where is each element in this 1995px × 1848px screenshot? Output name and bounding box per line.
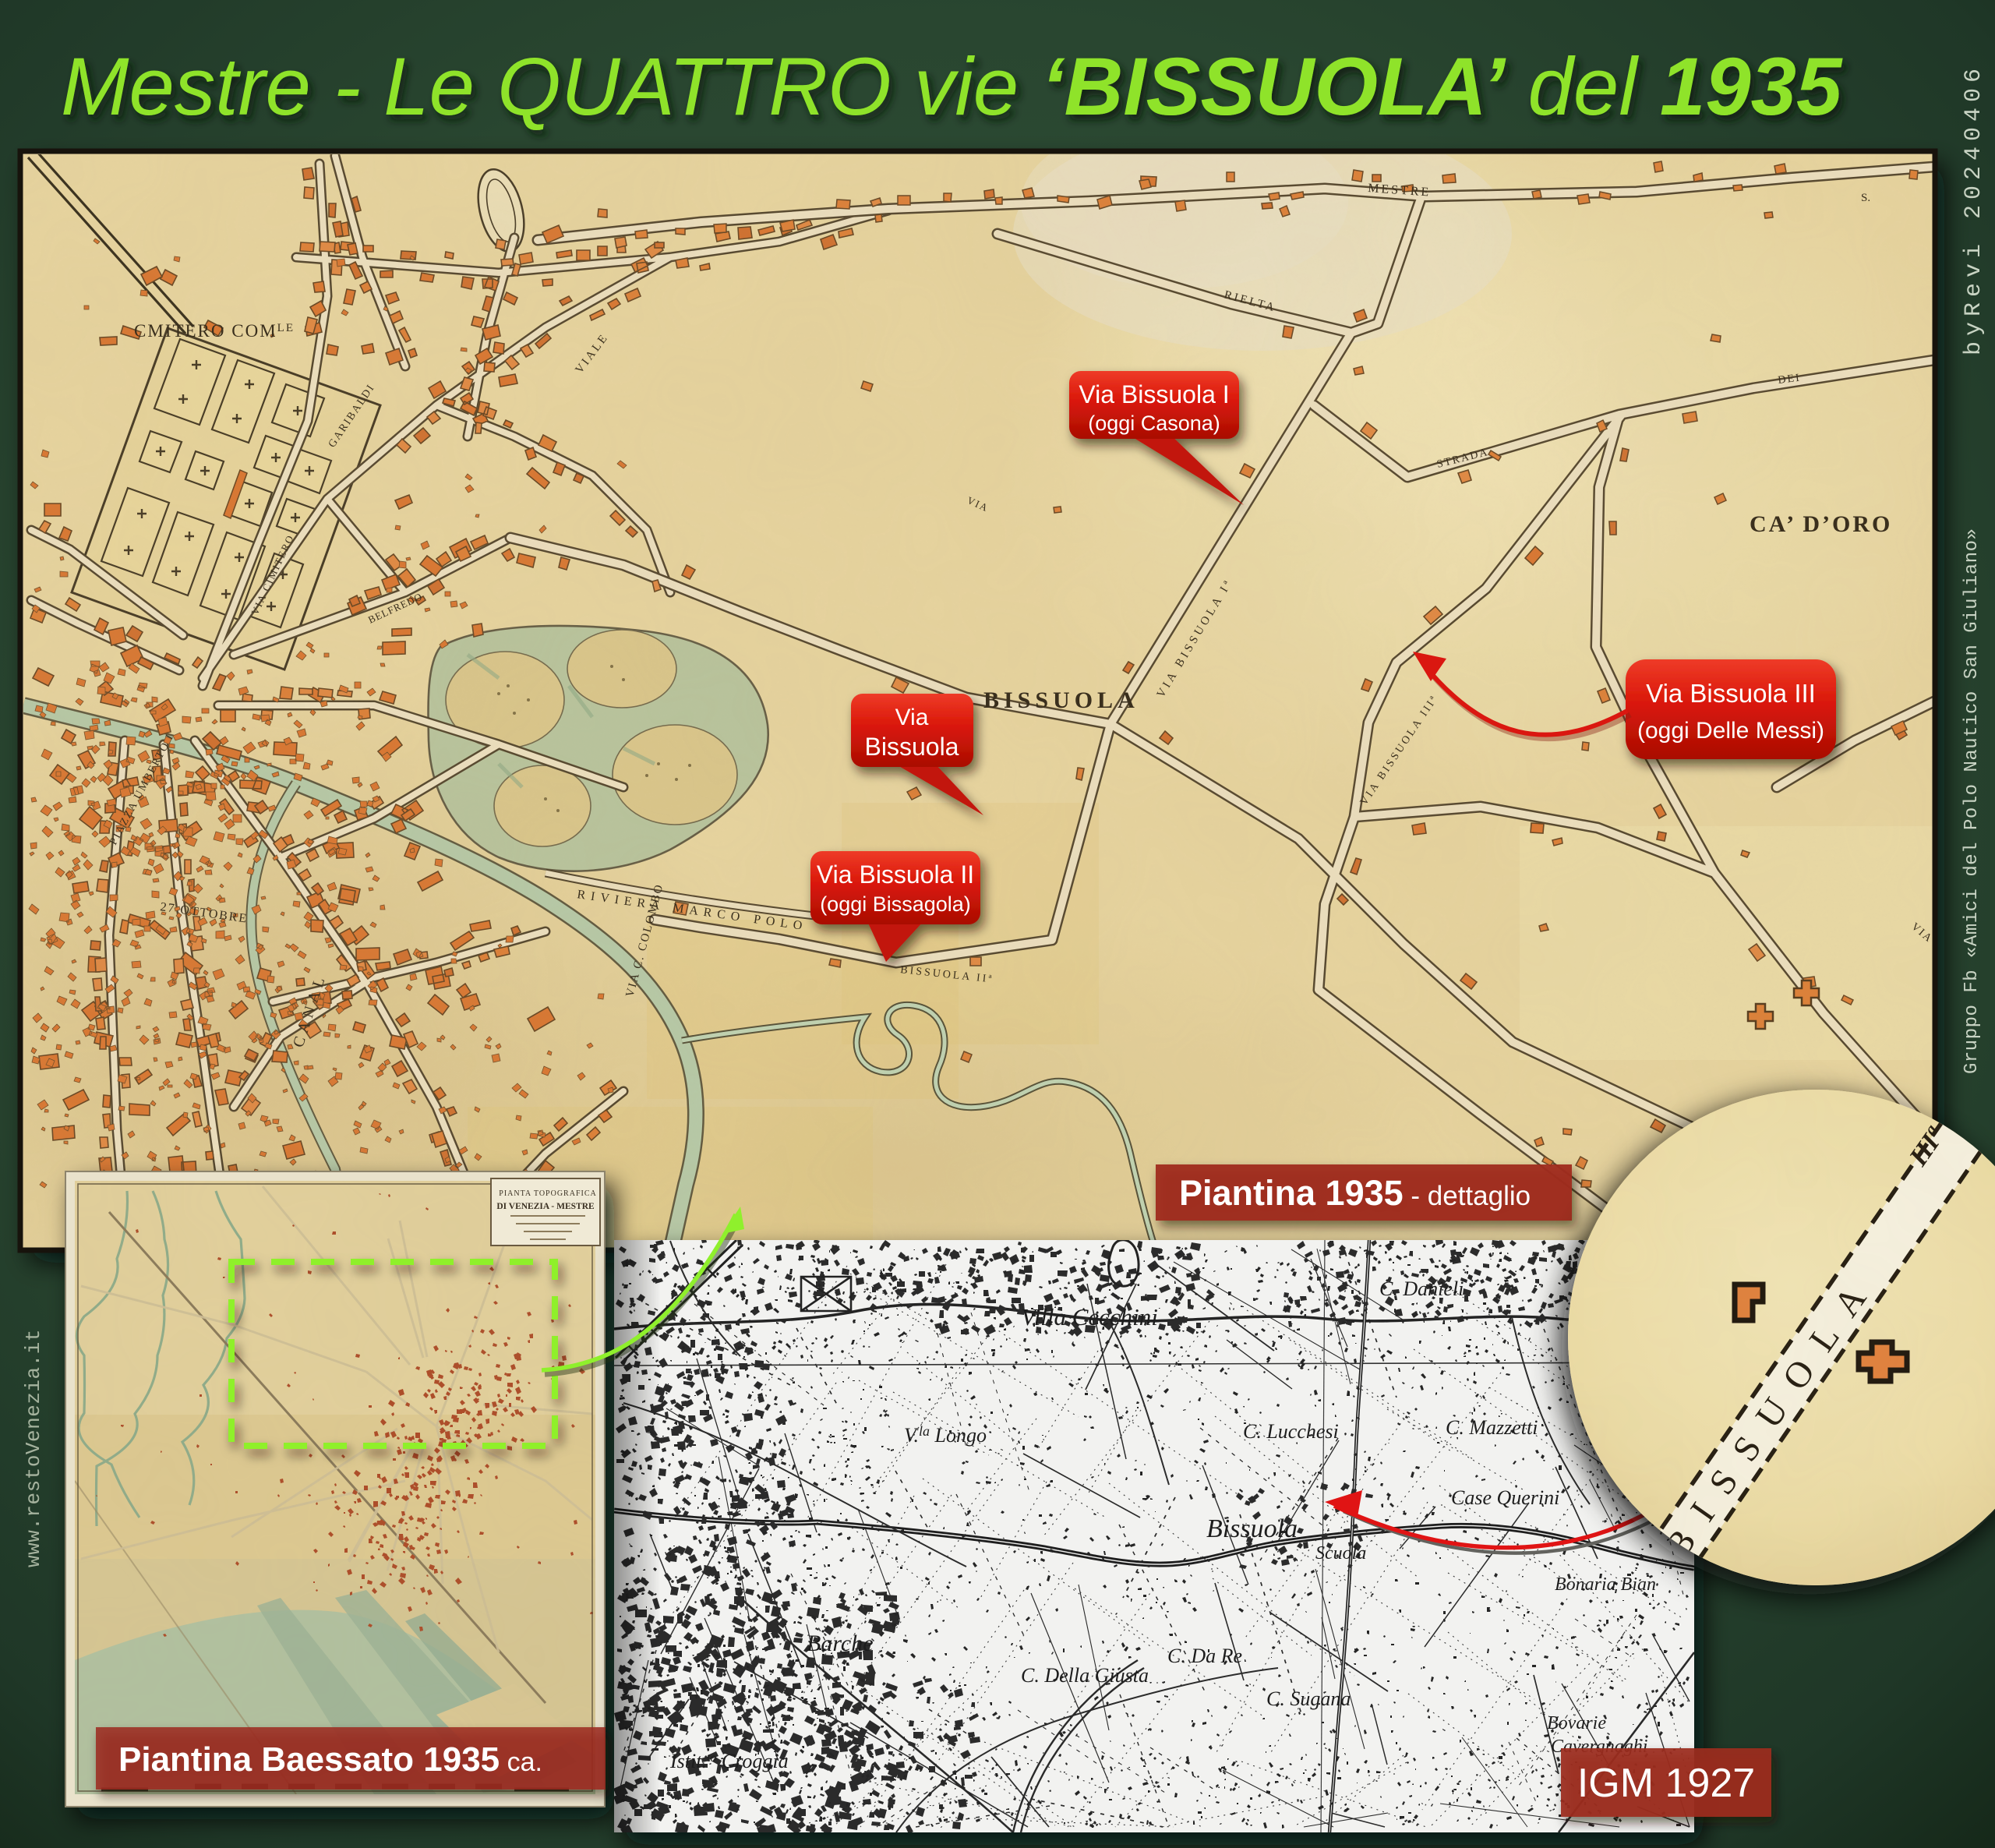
svg-text:Scuola: Scuola bbox=[1315, 1543, 1366, 1564]
svg-text:Villa Cecchini: Villa Cecchini bbox=[1021, 1303, 1158, 1330]
svg-text:Gruppo Fb «Amici del Polo Naut: Gruppo Fb «Amici del Polo Nautico San Gi… bbox=[1961, 528, 1983, 1074]
svg-text:C. Lucchesi: C. Lucchesi bbox=[1243, 1420, 1339, 1443]
svg-text:C. Della Giusta: C. Della Giusta bbox=[1021, 1664, 1149, 1687]
svg-text:Bovarie: Bovarie bbox=[1547, 1713, 1606, 1733]
svg-text:V.la Longo: V.la Longo bbox=[904, 1423, 987, 1447]
svg-text:BISSUOLA: BISSUOLA bbox=[983, 687, 1139, 713]
svg-text:C. Da Re: C. Da Re bbox=[1167, 1645, 1242, 1667]
svg-text:CMITERO COMLE: CMITERO COMLE bbox=[134, 321, 295, 341]
svg-text:DI VENEZIA - MESTRE: DI VENEZIA - MESTRE bbox=[496, 1202, 595, 1211]
svg-text:Via: Via bbox=[895, 705, 929, 730]
svg-text:Via Bissuola II: Via Bissuola II bbox=[817, 860, 974, 889]
svg-text:(oggi Casona): (oggi Casona) bbox=[1088, 412, 1220, 435]
svg-text:www.restoVenezia.it: www.restoVenezia.it bbox=[22, 1329, 45, 1567]
svg-text:C. Mazzetti: C. Mazzetti bbox=[1446, 1416, 1538, 1439]
svg-text:(oggi Delle Messi): (oggi Delle Messi) bbox=[1637, 718, 1824, 744]
svg-text:Bonaria Bian: Bonaria Bian bbox=[1555, 1574, 1656, 1595]
svg-text:CA’ D’ORO: CA’ D’ORO bbox=[1750, 511, 1892, 537]
svg-text:C. Sugana: C. Sugana bbox=[1266, 1687, 1351, 1710]
svg-text:Bissuola: Bissuola bbox=[1206, 1514, 1298, 1543]
svg-text:(oggi Bissagola): (oggi Bissagola) bbox=[820, 892, 971, 916]
svg-text:S.: S. bbox=[1861, 192, 1870, 204]
svg-text:Istit.to Croggia: Istit.to Croggia bbox=[669, 1750, 789, 1772]
svg-text:C. Danieli: C. Danieli bbox=[1379, 1277, 1464, 1300]
svg-text:Via Bissuola I: Via Bissuola I bbox=[1079, 380, 1229, 408]
svg-text:Piantina Baessato 1935 ca.: Piantina Baessato 1935 ca. bbox=[118, 1740, 542, 1779]
svg-text:Via Bissuola III: Via Bissuola III bbox=[1646, 679, 1816, 708]
svg-text:Case Querini: Case Querini bbox=[1451, 1486, 1559, 1509]
svg-text:Mestre - Le QUATTRO vie ‘BISSU: Mestre - Le QUATTRO vie ‘BISSUOLA’ del 1… bbox=[61, 41, 1843, 133]
svg-text:IGM 1927: IGM 1927 bbox=[1577, 1761, 1755, 1806]
svg-text:PIANTA TOPOGRAFICA: PIANTA TOPOGRAFICA bbox=[499, 1189, 596, 1198]
svg-text:Bissuola: Bissuola bbox=[865, 733, 959, 761]
svg-text:Barche: Barche bbox=[807, 1631, 874, 1656]
svg-text:byRevi 20240406: byRevi 20240406 bbox=[1961, 63, 1987, 355]
